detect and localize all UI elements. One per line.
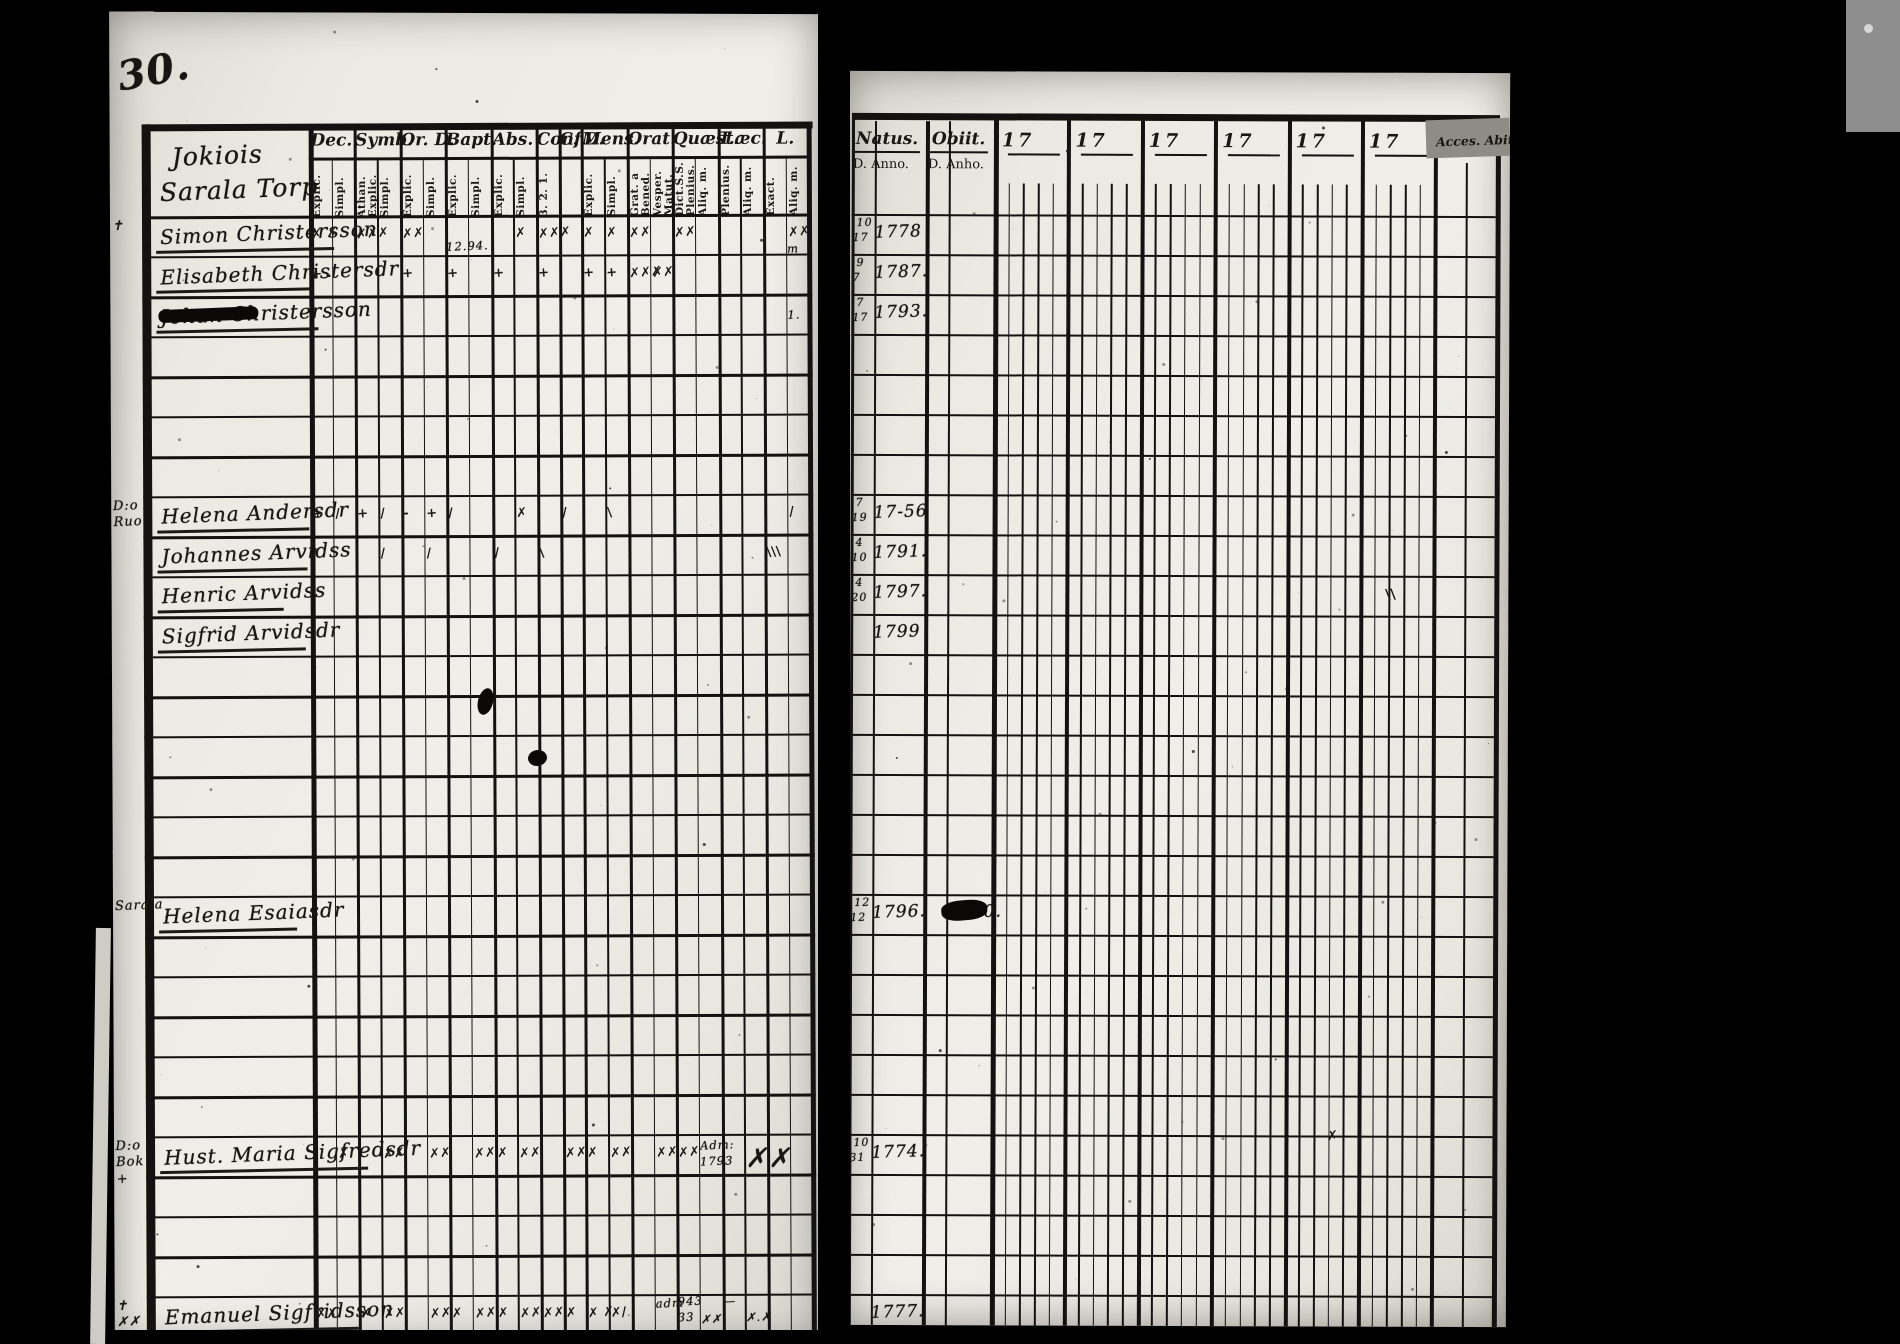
paper-speck bbox=[962, 583, 964, 585]
person-name-underline bbox=[159, 928, 297, 934]
natus-day: 10 bbox=[856, 216, 872, 229]
communion-mark: ✗✗ bbox=[542, 1305, 565, 1322]
cell-note: 1. bbox=[787, 307, 801, 321]
communion-mark: ✗✗ bbox=[564, 1145, 587, 1162]
paper-speck bbox=[560, 774, 563, 777]
paper-speck bbox=[711, 525, 712, 526]
row-line bbox=[143, 453, 813, 459]
paper-speck bbox=[1115, 1295, 1117, 1297]
paper-speck bbox=[1182, 1121, 1184, 1123]
communion-mark: ✗/ bbox=[610, 1305, 627, 1321]
communion-mark: ✗✗✗ bbox=[538, 224, 572, 241]
paper-speck bbox=[174, 597, 175, 598]
paper-speck bbox=[289, 158, 292, 161]
paper-speck bbox=[949, 678, 950, 679]
communion-mark: / bbox=[380, 506, 386, 521]
communion-mark: - bbox=[403, 506, 410, 521]
natus-year: 1796. bbox=[872, 901, 926, 923]
paper-speck bbox=[925, 1144, 927, 1146]
paper-speck bbox=[605, 646, 608, 649]
year-subcolumn-line bbox=[1004, 183, 1010, 1325]
paper-speck bbox=[1045, 892, 1046, 893]
paper-speck bbox=[596, 964, 598, 966]
communion-mark: ✗ bbox=[515, 225, 527, 241]
communion-mark: ✗ bbox=[516, 505, 528, 521]
row-line bbox=[143, 533, 813, 539]
column-group-label: Symb. bbox=[355, 130, 398, 150]
communion-mark: ✗✗ bbox=[628, 224, 651, 241]
year-subcolumn-line bbox=[1181, 184, 1187, 1326]
communion-mark: ✗✗ bbox=[383, 1306, 406, 1323]
year-subcolumn-line bbox=[1371, 185, 1377, 1327]
row-line bbox=[146, 1093, 816, 1099]
paper-speck bbox=[284, 317, 285, 318]
communion-mark: ✗ bbox=[451, 1306, 463, 1322]
paper-speck bbox=[1475, 838, 1478, 841]
year-subcolumn-line bbox=[1034, 184, 1040, 1326]
person-name: Johannes Arvidss bbox=[161, 537, 352, 568]
margin-note: D:o Ruo bbox=[113, 498, 147, 532]
row-line bbox=[147, 1253, 817, 1259]
paper-speck bbox=[751, 557, 753, 559]
row-line bbox=[145, 853, 815, 859]
natus-month: 10 bbox=[851, 551, 867, 564]
paper-speck bbox=[307, 985, 310, 988]
column-group-label: Abs. bbox=[491, 130, 534, 150]
communion-mark: ✗ bbox=[496, 1145, 508, 1161]
paper-speck bbox=[431, 227, 434, 230]
paper-speck bbox=[872, 1223, 875, 1226]
paper-speck bbox=[578, 138, 580, 140]
subcolumn-label: Aliq. m. bbox=[698, 162, 717, 216]
person-name: Helena Esaiasdr bbox=[163, 897, 345, 928]
subcolumn-label: Simpl. bbox=[516, 163, 535, 217]
paper-speck bbox=[973, 212, 976, 215]
person-name: Henric Arvidss bbox=[161, 578, 327, 608]
communion-mark: ✗ bbox=[497, 1305, 509, 1321]
column-group-label: Conf. bbox=[537, 130, 558, 150]
paper-speck bbox=[698, 1002, 699, 1003]
communion-mark: / bbox=[448, 506, 454, 521]
paper-speck bbox=[343, 1176, 345, 1178]
paper-speck bbox=[1421, 917, 1422, 918]
paper-speck bbox=[565, 615, 567, 617]
cell-note: 1793 bbox=[700, 1153, 734, 1168]
row-line bbox=[144, 733, 814, 738]
paper-speck bbox=[1013, 228, 1014, 229]
subcolumn-label: Plenius. bbox=[720, 162, 739, 216]
paper-speck bbox=[1075, 1279, 1076, 1280]
paper-speck bbox=[1464, 1209, 1466, 1211]
paper-speck bbox=[209, 788, 212, 791]
person-name-underline bbox=[158, 567, 308, 573]
paper-speck bbox=[1139, 829, 1140, 830]
paper-speck bbox=[703, 843, 706, 846]
subcolumn-label: Simpl. bbox=[471, 163, 490, 217]
paper-speck bbox=[592, 1123, 595, 1126]
subcolumn-line bbox=[422, 160, 429, 1344]
paper-speck bbox=[214, 629, 216, 631]
row-line bbox=[143, 373, 813, 379]
column-group-label: T.æc. bbox=[718, 129, 761, 149]
paper-speck bbox=[471, 259, 472, 260]
paper-speck bbox=[1099, 813, 1102, 816]
year-subcolumn-line bbox=[1225, 184, 1231, 1326]
year-subcolumn-line bbox=[1401, 185, 1407, 1327]
person-name-underline bbox=[158, 647, 306, 653]
subcolumn-line bbox=[604, 159, 611, 1343]
row-line bbox=[147, 1293, 817, 1298]
paper-speck bbox=[1232, 766, 1233, 767]
paper-speck bbox=[218, 470, 219, 471]
paper-speck bbox=[1352, 514, 1355, 517]
cell-note: — bbox=[723, 1294, 736, 1308]
communion-mark: \\\ bbox=[766, 544, 781, 560]
year-column-label: 17 bbox=[1075, 130, 1108, 152]
cell-note: 943 bbox=[678, 1294, 703, 1309]
natus-day: 10 bbox=[853, 1136, 869, 1149]
bottom-edge-smear bbox=[112, 1330, 822, 1344]
paper-speck bbox=[1149, 458, 1151, 460]
year-subcolumn-line bbox=[1049, 184, 1055, 1326]
year-label-underline bbox=[1155, 154, 1207, 156]
communion-mark: ✗✗ bbox=[383, 1146, 406, 1163]
paper-speck bbox=[427, 386, 428, 387]
column-group-label: Quæst. bbox=[673, 129, 716, 149]
paper-speck bbox=[458, 736, 459, 737]
obiit-underline bbox=[930, 151, 988, 153]
communion-mark: ✗✗ bbox=[315, 1306, 338, 1323]
natus-month: 7 bbox=[852, 271, 860, 284]
left-page: 30. Jokiois Sarala Torp Dec.Explic.Simpl… bbox=[109, 8, 825, 1344]
row-line bbox=[145, 893, 815, 898]
paper-speck bbox=[613, 328, 614, 329]
natus-day: 7 bbox=[855, 496, 863, 509]
communion-mark: ✗ bbox=[583, 225, 595, 241]
paper-speck bbox=[178, 438, 181, 441]
paper-speck bbox=[716, 366, 719, 369]
subcolumn-label: Grat. a Bened. bbox=[630, 162, 649, 216]
paper-speck bbox=[739, 1034, 741, 1036]
row-line bbox=[146, 1173, 816, 1179]
year-subcolumn-line bbox=[1166, 184, 1172, 1326]
year-subcolumn-line bbox=[1107, 184, 1113, 1326]
acces-header: Acces. Abit. bbox=[1436, 132, 1510, 150]
paper-speck bbox=[299, 1303, 301, 1305]
paper-speck bbox=[1392, 530, 1393, 531]
natus-year: 1777. bbox=[871, 1301, 925, 1323]
paper-speck bbox=[197, 1265, 200, 1268]
natus-header: Natus. bbox=[856, 129, 918, 149]
row-line bbox=[146, 1213, 816, 1218]
row-line bbox=[143, 413, 813, 418]
subcolumn-line bbox=[468, 160, 475, 1344]
natus-year: 17-56 bbox=[873, 501, 928, 523]
paper-speck bbox=[316, 667, 317, 668]
subcolumn-label: Aliq. m. bbox=[743, 162, 762, 216]
natus-month: 20 bbox=[851, 591, 867, 604]
paper-speck bbox=[1221, 1137, 1224, 1140]
paper-speck bbox=[992, 970, 994, 972]
paper-speck bbox=[333, 31, 336, 34]
year-column-border bbox=[1137, 118, 1145, 1326]
year-column-border bbox=[1357, 119, 1365, 1327]
subcolumn-label: Explic. bbox=[312, 164, 331, 218]
communion-mark-large: ✗ bbox=[768, 1143, 792, 1174]
person-name-underline bbox=[158, 608, 284, 613]
paper-speck bbox=[866, 370, 868, 372]
paper-speck bbox=[919, 291, 920, 292]
paper-speck bbox=[312, 826, 314, 828]
row-line bbox=[143, 333, 813, 338]
subcolumn-label: 3. 2. 1. bbox=[539, 163, 558, 217]
paper-speck bbox=[601, 805, 602, 806]
paper-speck bbox=[182, 279, 184, 281]
communion-mark: ✗ bbox=[361, 1306, 373, 1322]
year-subcolumn-line bbox=[1122, 184, 1128, 1326]
paper-speck bbox=[720, 207, 722, 209]
paper-speck bbox=[707, 684, 709, 686]
paper-speck bbox=[490, 1086, 491, 1087]
scanner-gray-patch bbox=[1846, 0, 1900, 132]
cell-note: 33 bbox=[678, 1310, 695, 1325]
subcolumn-label: Explic. bbox=[448, 163, 467, 217]
paper-speck bbox=[609, 487, 611, 489]
column-group-label: C. D. bbox=[559, 130, 580, 150]
column-group-label: Bapt. bbox=[446, 130, 489, 150]
subcolumn-label: Explic. bbox=[584, 162, 603, 216]
subcolumn-label: Aliq. m. bbox=[788, 162, 807, 216]
page-number: 30. bbox=[114, 41, 194, 100]
paper-speck bbox=[1192, 750, 1195, 753]
page-title-line2: Sarala Torp bbox=[159, 172, 319, 207]
subcolumn-label: Simpl. bbox=[334, 163, 353, 217]
communion-mark: + bbox=[492, 265, 504, 281]
communion-mark: \ bbox=[607, 505, 613, 520]
obiit-right-border bbox=[990, 117, 999, 1325]
paper-speck bbox=[201, 1106, 203, 1108]
communion-mark: / bbox=[380, 546, 386, 561]
paper-speck bbox=[747, 716, 750, 719]
paper-speck bbox=[885, 1128, 886, 1129]
paper-speck bbox=[1362, 143, 1363, 144]
year-subcolumn-line bbox=[1269, 184, 1275, 1326]
year-column-label: 17 bbox=[1149, 130, 1182, 152]
communion-mark: ✗✗ bbox=[474, 1305, 497, 1322]
natus-year: 1791. bbox=[873, 541, 927, 563]
communion-mark: ✗✗ bbox=[787, 224, 810, 241]
communion-mark-large: ✗ bbox=[745, 1143, 769, 1174]
subcolumn-label: Simpl. bbox=[607, 162, 626, 216]
communion-mark: + bbox=[357, 506, 369, 522]
communion-mark: / bbox=[334, 506, 340, 521]
year-column-label: 17 bbox=[1002, 129, 1035, 151]
subcolumn-label: Simpl. bbox=[380, 163, 399, 217]
row-line bbox=[145, 813, 815, 818]
scanner-white-speck bbox=[1864, 24, 1873, 33]
natus-day: 7 bbox=[856, 296, 864, 309]
year-column-label: 17 bbox=[1369, 131, 1402, 153]
paper-speck bbox=[1411, 1288, 1414, 1291]
paper-speck bbox=[1488, 743, 1489, 744]
person-name-underline bbox=[157, 527, 309, 533]
row-line bbox=[144, 573, 814, 578]
paper-speck bbox=[445, 1213, 446, 1214]
paper-speck bbox=[463, 577, 466, 580]
natus-day: 12 bbox=[854, 896, 870, 909]
natus-month: 17 bbox=[852, 311, 868, 324]
row-line bbox=[142, 213, 812, 219]
paper-speck bbox=[628, 1314, 630, 1316]
paper-speck bbox=[1381, 901, 1384, 904]
natus-day: 9 bbox=[856, 256, 864, 269]
cell-note: m bbox=[787, 241, 799, 255]
row-line bbox=[144, 773, 814, 779]
stray-mark: ✗ bbox=[1326, 1128, 1339, 1145]
natus-underline bbox=[854, 151, 920, 153]
year-column-border bbox=[1283, 118, 1291, 1326]
paper-speck bbox=[187, 120, 188, 121]
year-subcolumn-line bbox=[1298, 184, 1304, 1326]
paper-speck bbox=[169, 756, 171, 758]
paper-speck bbox=[320, 508, 323, 511]
communion-mark: ✗ ✗ bbox=[311, 226, 338, 243]
year-subcolumn-line bbox=[1195, 184, 1201, 1326]
communion-mark: ✗✗ bbox=[428, 1145, 451, 1162]
paper-speck bbox=[165, 915, 168, 918]
torn-top-edge bbox=[150, 1, 822, 14]
communion-mark: ✗ bbox=[565, 1305, 577, 1321]
subcolumn-label: Vesper. Matut. bbox=[652, 162, 671, 216]
cell-note: ✗.✗ bbox=[746, 1309, 772, 1324]
paper-speck bbox=[939, 1049, 942, 1052]
paper-speck bbox=[734, 1193, 737, 1196]
paper-speck bbox=[450, 1054, 453, 1057]
column-group-label: L. bbox=[764, 129, 807, 149]
paper-speck bbox=[1255, 300, 1258, 303]
paper-speck bbox=[422, 545, 424, 547]
paper-speck bbox=[1056, 521, 1058, 523]
year-subcolumn-line bbox=[1327, 185, 1333, 1327]
year-subcolumn-line bbox=[1416, 185, 1422, 1327]
year-subcolumn-line bbox=[1386, 185, 1392, 1327]
communion-mark: ✗ bbox=[587, 1145, 599, 1161]
paper-speck bbox=[1002, 599, 1005, 602]
paper-speck bbox=[1202, 379, 1203, 380]
natus-year: 1799 bbox=[873, 621, 921, 642]
paper-speck bbox=[569, 456, 570, 457]
subcolumn-line bbox=[513, 160, 520, 1344]
communion-mark: ✗✗ bbox=[674, 224, 697, 241]
natus-month: 31 bbox=[849, 1151, 865, 1164]
column-group-label: Orat. bbox=[627, 129, 670, 149]
communion-mark: / bbox=[425, 546, 431, 561]
subcolumn-label: Explic. bbox=[403, 163, 422, 217]
page-title-line1: Jokiois bbox=[171, 139, 263, 172]
paper-speck bbox=[1032, 986, 1035, 989]
natus-month: 12 bbox=[850, 911, 866, 924]
year-column-border bbox=[1210, 118, 1218, 1326]
communion-mark: ✗✗ bbox=[519, 1145, 542, 1162]
paper-speck bbox=[1309, 221, 1311, 223]
natus-year: 1787. bbox=[874, 261, 928, 283]
paper-speck bbox=[1328, 980, 1329, 981]
paper-speck bbox=[979, 1065, 980, 1066]
row-line bbox=[142, 253, 812, 258]
paper-speck bbox=[743, 875, 744, 876]
paper-speck bbox=[1435, 822, 1437, 824]
paper-speck bbox=[573, 297, 576, 300]
column-group-label: Or. D. bbox=[400, 130, 443, 150]
subcolumn-label: Simpl. bbox=[425, 163, 444, 217]
communion-mark: + . bbox=[311, 266, 332, 282]
row-line bbox=[142, 293, 812, 299]
paper-speck bbox=[1322, 127, 1325, 130]
paper-speck bbox=[1458, 356, 1459, 357]
year-subcolumn-line bbox=[1313, 184, 1319, 1326]
communion-mark: ✗✗ bbox=[473, 1145, 496, 1162]
subcolumn-label: Athan. Explic. bbox=[357, 163, 376, 217]
row-line bbox=[144, 653, 814, 658]
year-column-label: 17 bbox=[1296, 130, 1329, 152]
natus-year: 1778 bbox=[874, 221, 922, 242]
communion-mark: \ bbox=[539, 546, 545, 561]
communion-mark: ✗✗ bbox=[610, 1145, 633, 1162]
paper-speck bbox=[1162, 363, 1165, 366]
margin-note: Sarala bbox=[115, 898, 149, 916]
communion-mark: ✗✗ bbox=[655, 1144, 678, 1161]
communion-mark: ✗✗ bbox=[401, 225, 424, 242]
gutter-shadow bbox=[818, 0, 850, 1344]
row-line bbox=[143, 493, 813, 498]
row-line bbox=[145, 1013, 815, 1019]
paper-speck bbox=[475, 100, 478, 103]
paper-speck bbox=[1285, 687, 1288, 690]
communion-mark: ✗ bbox=[337, 1146, 349, 1162]
subcolumn-line bbox=[649, 159, 656, 1343]
paper-speck bbox=[1445, 451, 1448, 454]
paper-speck bbox=[156, 1233, 158, 1235]
row-line bbox=[145, 933, 815, 939]
year-column-border bbox=[1430, 119, 1438, 1327]
column-group-label: Mens. bbox=[582, 129, 625, 149]
year-column-border bbox=[1063, 118, 1071, 1326]
year-subcolumn-line bbox=[1078, 184, 1084, 1326]
subcolumn-line bbox=[377, 160, 384, 1344]
margin-note: D:o Bok + bbox=[115, 1138, 150, 1188]
paper-fold-strip bbox=[90, 928, 111, 1344]
paper-speck bbox=[1338, 609, 1340, 611]
natus-year: 1793. bbox=[874, 301, 928, 323]
row-line bbox=[145, 973, 815, 978]
communion-mark: + bbox=[583, 265, 595, 281]
year-label-underline bbox=[1008, 153, 1060, 155]
year-subcolumn-line bbox=[1342, 185, 1348, 1327]
paper-speck bbox=[454, 895, 456, 897]
cell-note: 12.94. bbox=[446, 238, 489, 254]
natus-subheader: D. Anno. bbox=[853, 157, 909, 172]
table-right-border bbox=[807, 121, 817, 1340]
communion-mark: / bbox=[788, 504, 794, 519]
communion-mark: ✗✗ bbox=[429, 1305, 452, 1322]
paper-speck bbox=[1026, 133, 1028, 135]
paper-speck bbox=[909, 662, 912, 665]
communion-mark: / bbox=[494, 546, 500, 561]
paper-speck bbox=[1128, 1200, 1131, 1203]
communion-mark: / bbox=[312, 547, 318, 562]
right-page: Natus.D. Anno.Obiit.D. Anho.171717171717… bbox=[844, 71, 1510, 1327]
communion-mark: + bbox=[606, 265, 618, 281]
